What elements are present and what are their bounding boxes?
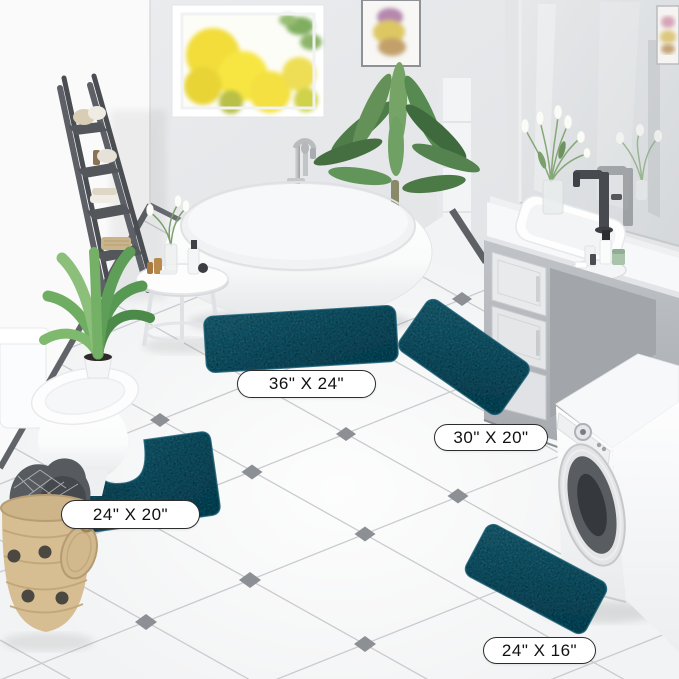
size-text-24x20: 24" X 20" xyxy=(93,505,168,525)
rug-36x24 xyxy=(203,305,398,373)
bathroom-scene: 36" X 24" 30" X 20" 24" X 20" 24" X 16" xyxy=(0,0,679,679)
size-callout-24x20: 24" X 20" xyxy=(61,500,200,529)
mirror-reflected-art xyxy=(657,6,679,64)
size-text-24x16: 24" X 16" xyxy=(502,641,577,661)
size-callout-30x20: 30" X 20" xyxy=(434,424,548,451)
size-callout-36x24: 36" X 24" xyxy=(237,370,376,398)
size-text-30x20: 30" X 20" xyxy=(453,428,528,448)
window xyxy=(172,5,324,117)
scene-illustration xyxy=(0,0,679,679)
wall-art xyxy=(362,0,420,66)
size-text-36x24: 36" X 24" xyxy=(269,374,344,394)
size-callout-24x16: 24" X 16" xyxy=(483,637,596,664)
mirror-reflected-corner xyxy=(648,40,660,218)
